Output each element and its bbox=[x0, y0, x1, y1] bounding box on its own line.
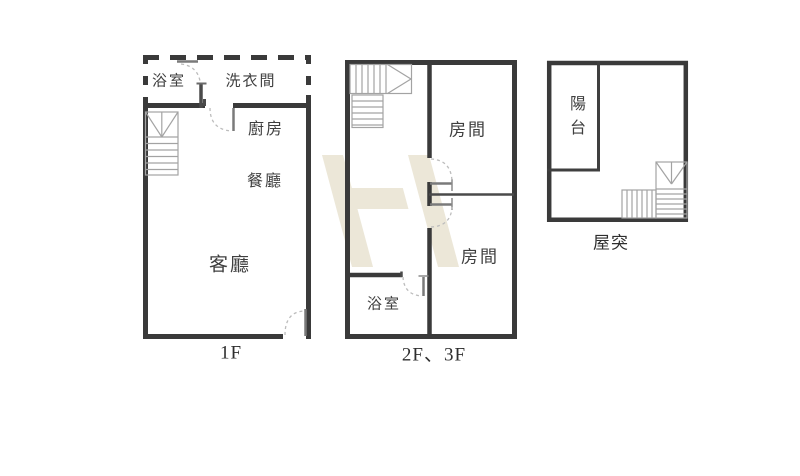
staircase bbox=[622, 162, 687, 218]
floor-label-1f: 1F bbox=[220, 344, 242, 363]
room-label-dining: 餐廳 bbox=[247, 174, 283, 190]
room-label-kitchen: 廚房 bbox=[248, 122, 284, 138]
watermark-h-icon bbox=[322, 155, 459, 267]
floorplan-1f bbox=[143, 55, 311, 339]
room-label-bedroom-upper: 房間 bbox=[449, 122, 487, 139]
room-label-bathroom-1f: 浴室 bbox=[152, 75, 186, 90]
room-label-balcony: 陽台 bbox=[567, 95, 583, 143]
door-swings bbox=[177, 62, 306, 337]
outer-walls bbox=[143, 95, 311, 339]
room-label-bathroom-2f: 浴室 bbox=[367, 298, 401, 313]
floor-label-rooftop: 屋突 bbox=[593, 235, 629, 252]
room-label-laundry: 洗衣間 bbox=[225, 75, 276, 90]
staircase bbox=[350, 65, 412, 128]
room-label-living: 客廳 bbox=[209, 256, 251, 275]
room-label-bedroom-lower: 房間 bbox=[461, 249, 499, 266]
staircase bbox=[146, 112, 179, 175]
floorplan-canvas: 浴室 洗衣間 廚房 餐廳 客廳 房間 房間 浴室 陽台 1F 2F、3F 屋突 bbox=[0, 0, 800, 476]
floor-label-2f-3f: 2F、3F bbox=[402, 346, 466, 365]
floorplan-drawing bbox=[0, 0, 800, 476]
